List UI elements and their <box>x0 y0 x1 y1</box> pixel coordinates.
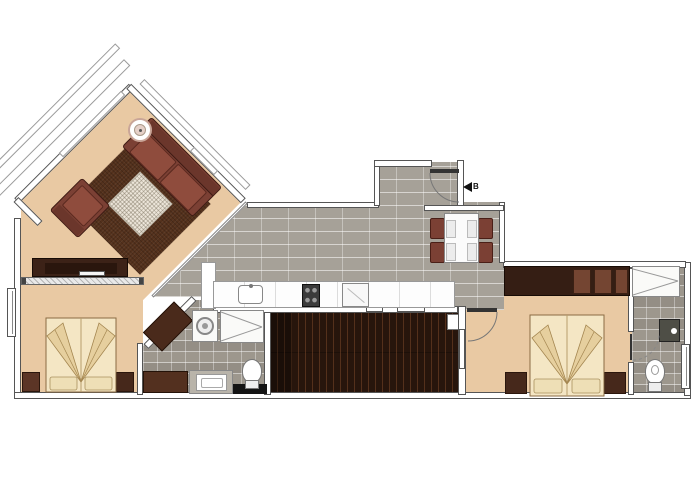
shower-2-glazing <box>633 269 678 295</box>
pillow <box>534 379 562 393</box>
pillow <box>572 379 600 393</box>
double-bed-2 <box>530 315 604 396</box>
double-bed-1 <box>46 318 116 392</box>
bedroom2-door <box>467 308 497 341</box>
pillow <box>50 377 77 390</box>
entrance-door <box>430 169 459 202</box>
pillow <box>85 377 112 390</box>
floor-plan: B <box>0 0 700 500</box>
plan-annotations <box>0 0 700 500</box>
shower-1-glazing <box>221 312 262 341</box>
bathroom2-door <box>631 334 659 360</box>
